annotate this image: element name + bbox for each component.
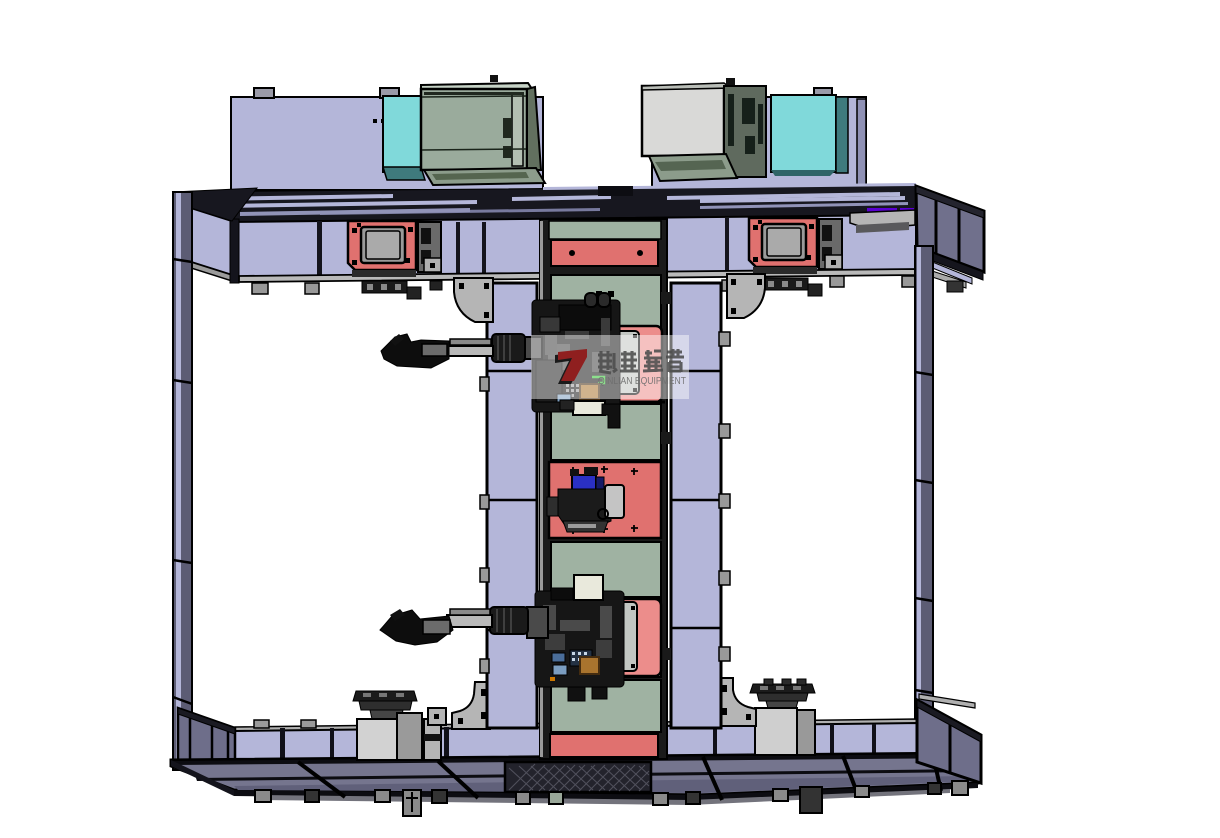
svg-text:QINLIAN EQUIPMENT: QINLIAN EQUIPMENT: [598, 375, 686, 387]
